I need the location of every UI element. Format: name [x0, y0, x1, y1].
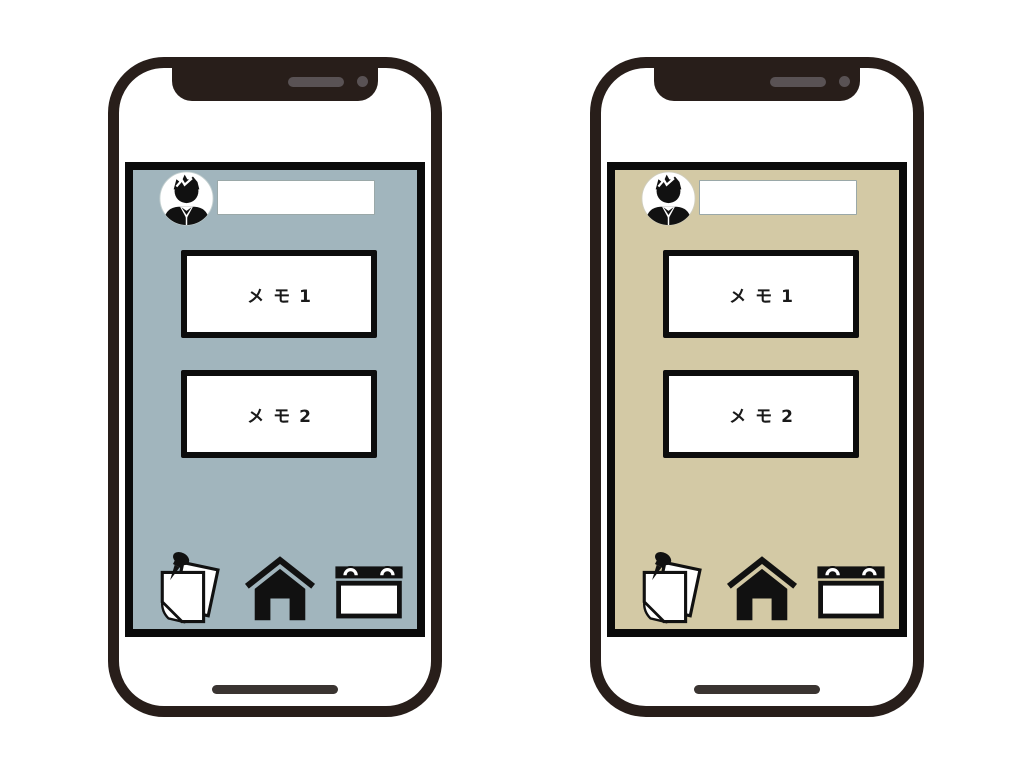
- home-indicator-bar[interactable]: [694, 685, 820, 694]
- app-screen: メモ1 メモ2: [607, 162, 907, 637]
- speaker-slot: [288, 77, 344, 87]
- person-avatar-icon[interactable]: [159, 171, 214, 226]
- calendar-icon[interactable]: [815, 556, 887, 620]
- person-avatar-icon[interactable]: [641, 171, 696, 226]
- phone-notch: [654, 67, 860, 101]
- memo-notes-icon[interactable]: [627, 549, 713, 627]
- front-camera-dot: [357, 76, 368, 87]
- profile-name-input[interactable]: [699, 180, 857, 215]
- memo-1-button[interactable]: メモ1: [663, 250, 859, 338]
- front-camera-dot: [839, 76, 850, 87]
- phone-right: メモ1 メモ2: [590, 57, 924, 717]
- profile-name-input[interactable]: [217, 180, 375, 215]
- memo-1-button[interactable]: メモ1: [181, 250, 377, 338]
- phone-left: メモ1 メモ2: [108, 57, 442, 717]
- memo-2-button[interactable]: メモ2: [663, 370, 859, 458]
- memo-notes-icon[interactable]: [145, 549, 231, 627]
- calendar-icon[interactable]: [333, 556, 405, 620]
- app-screen: メモ1 メモ2: [125, 162, 425, 637]
- speaker-slot: [770, 77, 826, 87]
- home-icon[interactable]: [237, 554, 323, 622]
- home-indicator-bar[interactable]: [212, 685, 338, 694]
- memo-2-button[interactable]: メモ2: [181, 370, 377, 458]
- home-icon[interactable]: [719, 554, 805, 622]
- phone-notch: [172, 67, 378, 101]
